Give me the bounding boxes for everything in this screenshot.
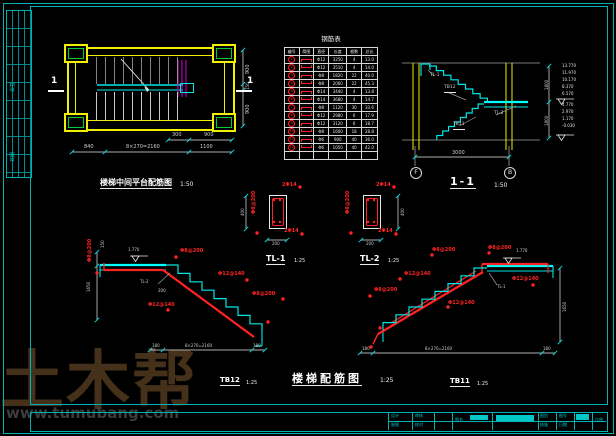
- table-cell: 3680: [329, 96, 347, 104]
- rebar-dot: [398, 277, 401, 280]
- bar-number: 2: [288, 64, 295, 71]
- elevation-list-upper: 13.77011.97010.1708.3706.570: [562, 62, 598, 97]
- cad-drawing-sheet: 土木帮 www.tumubang.com 会签 日期 1 1 840 8×270…: [0, 0, 616, 436]
- table-cell: 1600: [329, 128, 347, 136]
- line: [163, 270, 254, 337]
- title-block-divider: [556, 412, 557, 430]
- line: [158, 273, 170, 284]
- line: [489, 273, 497, 285]
- table-cell: 2060: [329, 80, 347, 88]
- table-row: 9Φ123120618.7: [285, 120, 378, 128]
- rebar-tag: Φ8@200: [346, 191, 351, 214]
- dim-label: 1650: [563, 302, 567, 312]
- bar-shape-diagram: [301, 115, 313, 116]
- rebar-tag: 2Φ14: [284, 229, 299, 234]
- signature-label: 会签: [11, 82, 16, 92]
- bar-number: 7: [288, 104, 295, 111]
- table-cell: 22: [347, 72, 362, 80]
- table-cell: 3510: [329, 64, 347, 72]
- dim-label: 8×270=2160: [185, 344, 212, 348]
- table-cell: Φ14: [314, 96, 329, 104]
- stair-steps: [429, 66, 487, 103]
- rebar-tag: Φ8@200: [432, 248, 455, 253]
- table-header: 总长: [361, 48, 377, 56]
- beam-label: TL-1: [430, 74, 440, 79]
- titleblock-name-label: 图名: [455, 418, 463, 422]
- table-cell: 18: [347, 128, 362, 136]
- section-mark-flag: [48, 90, 64, 92]
- title-block-divider: [592, 412, 593, 430]
- rebar-dot: [255, 231, 258, 234]
- table-row: 7Φ811203033.6: [285, 104, 378, 112]
- title-block-divider: [574, 412, 575, 430]
- grid-bubble-left: F: [410, 167, 422, 179]
- table-cell: 4: [347, 56, 362, 64]
- plan-title: 楼梯中间平台配筋图: [100, 179, 172, 189]
- bar-number: 1: [288, 56, 295, 63]
- plan-column: [64, 44, 88, 63]
- tl1-scale: 1:25: [294, 259, 305, 264]
- table-cell: 28.8: [361, 128, 377, 136]
- level-mark: [505, 258, 512, 264]
- section-mark-number: 1: [51, 77, 57, 86]
- rebar-tag: Φ8@200: [252, 191, 257, 214]
- dim-label: 900: [204, 133, 214, 138]
- rebar-dot: [430, 253, 433, 256]
- table-cell: 22: [347, 80, 362, 88]
- tb12-title: TB12: [220, 377, 240, 386]
- dim-label: 8×270=2160: [425, 347, 452, 351]
- bar-shape-diagram: [301, 59, 313, 60]
- bar-shape-diagram: [301, 147, 313, 148]
- bar-shape-diagram: [301, 67, 313, 68]
- table-header: 直径: [314, 48, 329, 56]
- table-cell: 3250: [329, 56, 347, 64]
- table-row: 3Φ818202240.0: [285, 72, 378, 80]
- titleblock-draft-label: 制图: [391, 423, 399, 427]
- table-header: 简图: [299, 48, 314, 56]
- table-row: 2Φ123510414.0: [285, 64, 378, 72]
- tl1-stirrup: [272, 198, 284, 226]
- bar-number: 10: [288, 128, 295, 135]
- table-cell: Φ12: [314, 120, 329, 128]
- titleblock-proof-label: 校对: [415, 423, 423, 427]
- stair-steps: [421, 64, 430, 76]
- table-cell: 3120: [329, 120, 347, 128]
- titleblock-scale-label: 比例: [595, 418, 603, 422]
- tb12-scale: 1:25: [246, 381, 257, 386]
- rebar-tag: 2Φ14: [376, 183, 391, 188]
- bar-shape-diagram: [301, 139, 313, 140]
- rebar-tag: Φ12@140: [448, 301, 475, 306]
- plan-title-scale: 1:50: [180, 182, 193, 188]
- table-cell: 13.8: [361, 88, 377, 96]
- bar-shape-diagram: [301, 99, 313, 100]
- story-dim: 1800: [545, 80, 549, 90]
- story-dim: 1800: [545, 116, 549, 126]
- table-cell: 1820: [329, 72, 347, 80]
- bar-shape-diagram: [301, 123, 313, 124]
- bar-number: 3: [288, 72, 295, 79]
- title-block-divider: [434, 412, 435, 430]
- dim-label: 900: [246, 104, 251, 114]
- elevation-list-lower: 4.7702.9701.170-0.030: [562, 101, 598, 129]
- plan-column: [212, 113, 236, 132]
- level-mark: [132, 256, 139, 262]
- dim-label: 200: [366, 242, 374, 246]
- dim-label: 180: [152, 344, 160, 348]
- bar-shape-diagram: [301, 107, 313, 108]
- titleblock-date-label: 日期: [559, 423, 567, 427]
- table-cell: 30: [347, 104, 362, 112]
- dim-label: 200: [158, 289, 166, 293]
- rebar-dot: [368, 294, 371, 297]
- table-cell: Φ8: [314, 128, 329, 136]
- beam-label: TL-1: [497, 285, 506, 289]
- table-row: 6Φ143680414.7: [285, 96, 378, 104]
- bar-number: 12: [288, 144, 295, 151]
- table-cell: 3440: [329, 88, 347, 96]
- table-cell: 2980: [329, 112, 347, 120]
- rebar-tag: Φ8@200: [180, 249, 203, 254]
- dim-label: 8×270=2160: [126, 145, 160, 150]
- titleblock-type-value: 结施: [540, 423, 548, 427]
- table-cell: 6: [347, 120, 362, 128]
- elevation-value: 10.170: [562, 76, 598, 83]
- table-row: 12Φ610504042.0: [285, 144, 378, 152]
- table-cell: 14.0: [361, 64, 377, 72]
- dim-label: 180: [543, 347, 551, 351]
- bar-number: 11: [288, 136, 295, 143]
- main-drawing-title: 楼梯配筋图: [292, 373, 362, 386]
- beam-label: TL-2: [140, 280, 149, 284]
- rebar-tag: Φ8@200: [488, 246, 511, 251]
- rebar-dot: [487, 251, 490, 254]
- elevation-value: 8.370: [562, 83, 598, 90]
- table-header: 长度: [329, 48, 347, 56]
- tl2-stirrup: [366, 198, 378, 226]
- table-cell: 4: [347, 64, 362, 72]
- flight-label: TB12: [444, 86, 456, 93]
- table-cell: 45.3: [361, 80, 377, 88]
- table-cell: 900: [329, 136, 347, 144]
- rebar-tag: Φ12@140: [404, 272, 431, 277]
- main-drawing-scale: 1:25: [380, 378, 393, 384]
- level-mark: [558, 135, 565, 141]
- table-cell: 1050: [329, 144, 347, 152]
- level-value: 1.770: [516, 249, 527, 253]
- rebar-dot: [266, 320, 269, 323]
- bar-shape-diagram: [301, 131, 313, 132]
- bar-number: 8: [288, 112, 295, 119]
- titleblock-project-bar: [496, 415, 534, 421]
- table-row: 8Φ122980617.9: [285, 112, 378, 120]
- dim-label: 3000: [452, 151, 465, 156]
- table-cell: Φ8: [314, 80, 329, 88]
- table-cell: 4: [347, 88, 362, 96]
- elevation-value: -0.030: [562, 122, 598, 129]
- title-block-divider: [388, 412, 389, 430]
- rebar-tag: Φ12@140: [512, 277, 539, 282]
- line: [447, 92, 466, 100]
- plan-column: [212, 44, 236, 63]
- stair-steps: [166, 265, 262, 332]
- table-cell: 40: [347, 136, 362, 144]
- tl2-title: TL-2: [360, 255, 379, 265]
- table-cell: Φ14: [314, 88, 329, 96]
- rebar-dot: [174, 255, 177, 258]
- level-value: 1.770: [128, 248, 139, 252]
- bar-number: 9: [288, 120, 295, 127]
- rebar-dot: [166, 308, 169, 311]
- table-header: 根数: [347, 48, 362, 56]
- tb11-title: TB11: [450, 378, 470, 387]
- rebar-tag: Φ8@200: [88, 239, 93, 262]
- dim-label: 180: [362, 347, 370, 351]
- table-row: 11Φ69004036.0: [285, 136, 378, 144]
- rebar-tag: Φ12@140: [148, 303, 175, 308]
- line: [373, 334, 378, 344]
- dim-label: 1650: [87, 282, 91, 292]
- bar-number: 6: [288, 96, 295, 103]
- table-cell: 13.0: [361, 56, 377, 64]
- rebar-tag: 2Φ14: [378, 229, 393, 234]
- bar-number: 4: [288, 80, 295, 87]
- table-cell: 4: [347, 96, 362, 104]
- table-row: [285, 152, 378, 160]
- rebar-table-title: 钢筋表: [283, 36, 379, 43]
- dim-label: 1100: [200, 145, 213, 150]
- beam-label: TL-2: [494, 112, 504, 117]
- table-header: 编号: [285, 48, 300, 56]
- table-cell: 42.0: [361, 144, 377, 152]
- bar-number: 5: [288, 88, 295, 95]
- plan-landing-box: [180, 83, 194, 93]
- titleblock-design-label: 设计: [391, 414, 399, 418]
- bar-shape-diagram: [301, 83, 313, 84]
- flight-label: TB11: [453, 123, 465, 130]
- rebar-tag: Φ12@140: [218, 272, 245, 277]
- rebar-dot: [298, 185, 301, 188]
- elevation-value: 1.170: [562, 115, 598, 122]
- section-title-scale: 1:50: [494, 183, 507, 189]
- table-cell: Φ6: [314, 136, 329, 144]
- section-title: 1-1: [450, 176, 476, 189]
- elevation-value: 6.570: [562, 90, 598, 97]
- plan-treads-lower: [96, 92, 184, 121]
- dim-label: 900: [246, 64, 251, 74]
- titleblock-no-bar: [576, 414, 589, 420]
- table-cell: 1120: [329, 104, 347, 112]
- table-cell: Φ12: [314, 64, 329, 72]
- elevation-value: 11.970: [562, 69, 598, 76]
- table-row: 10Φ816001828.8: [285, 128, 378, 136]
- titleblock-check-label: 审核: [415, 414, 423, 418]
- rebar-dot: [300, 232, 303, 235]
- table-cell: Φ8: [314, 72, 329, 80]
- section-mark-flag: [236, 90, 252, 92]
- bar-shape-diagram: [301, 91, 313, 92]
- dim-label: 400: [401, 208, 405, 216]
- table-cell: Φ8: [314, 104, 329, 112]
- table-cell: 40: [347, 144, 362, 152]
- titleblock-type-label: 图别: [540, 414, 548, 418]
- tl1-title: TL-1: [266, 255, 285, 265]
- dim-label: 150: [101, 240, 105, 248]
- rebar-dot: [349, 231, 352, 234]
- table-cell: Φ12: [314, 112, 329, 120]
- rebar-dot: [95, 271, 98, 274]
- grid-bubble-right: B: [504, 167, 516, 179]
- title-block-divider: [492, 412, 493, 430]
- title-block-divider: [412, 412, 413, 430]
- table-cell: 14.7: [361, 96, 377, 104]
- signature-date-label: 日期: [11, 152, 16, 162]
- titleblock-no-label: 图号: [559, 414, 567, 418]
- titleblock-name-bar: [470, 415, 488, 420]
- tb11-scale: 1:25: [477, 382, 488, 387]
- table-cell: 18.7: [361, 120, 377, 128]
- table-row: 1Φ123250413.0: [285, 56, 378, 64]
- table-cell: 6: [347, 112, 362, 120]
- table-cell: 17.9: [361, 112, 377, 120]
- elevation-value: 4.770: [562, 101, 598, 108]
- table-cell: Φ12: [314, 56, 329, 64]
- table-cell: Φ6: [314, 144, 329, 152]
- rebar-dot: [281, 297, 284, 300]
- rebar-dot: [245, 278, 248, 281]
- elevation-value: 13.770: [562, 62, 598, 69]
- plan-treads-upper: [96, 57, 184, 84]
- title-block-divider: [452, 412, 453, 430]
- plan-column: [64, 113, 88, 132]
- dim-label: 200: [272, 242, 280, 246]
- table-cell: 33.6: [361, 104, 377, 112]
- rebar-tag: Φ8@200: [252, 292, 275, 297]
- table-cell: 36.0: [361, 136, 377, 144]
- title-block-divider: [538, 412, 539, 430]
- rebar-dot: [531, 283, 534, 286]
- table-row: 5Φ143440413.8: [285, 88, 378, 96]
- dim-label: 840: [84, 145, 94, 150]
- table-cell: 40.0: [361, 72, 377, 80]
- table-row: 4Φ820602245.3: [285, 80, 378, 88]
- bar-shape-diagram: [301, 75, 313, 76]
- rebar-tag: 2Φ14: [282, 183, 297, 188]
- dim-label: 300: [172, 133, 182, 138]
- elevation-value: 2.970: [562, 108, 598, 115]
- rebar-dot: [392, 185, 395, 188]
- rebar-tag: Φ8@200: [374, 288, 397, 293]
- dim-label: 400: [241, 208, 245, 216]
- rebar-dot: [394, 232, 397, 235]
- dim-label: 150: [246, 82, 250, 90]
- tl2-scale: 1:25: [388, 259, 399, 264]
- rebar-table: 编号简图直径长度根数总长1Φ123250413.02Φ123510414.03Φ…: [284, 47, 378, 160]
- rebar-dot: [378, 326, 381, 329]
- dim-label: 180: [253, 344, 261, 348]
